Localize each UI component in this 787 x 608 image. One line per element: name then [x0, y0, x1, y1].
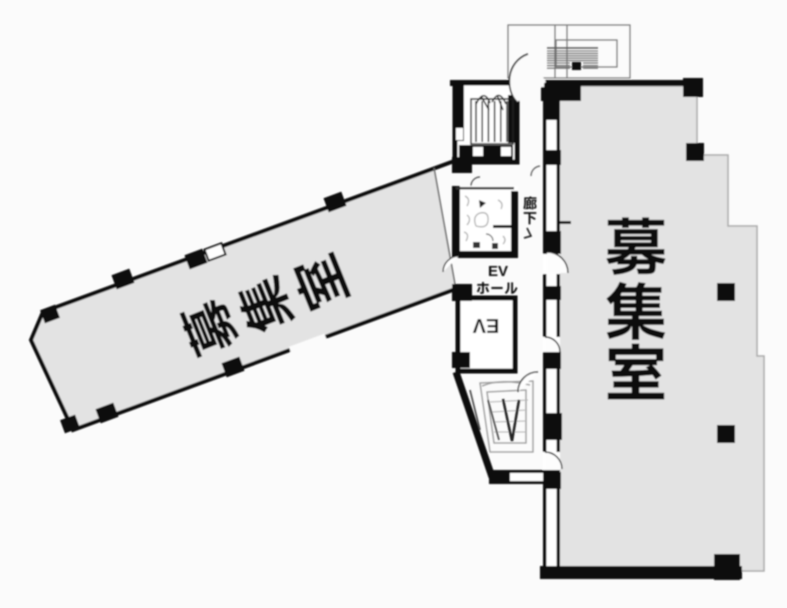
- svg-text:EV: EV: [472, 314, 499, 336]
- svg-text:EV: EV: [488, 263, 508, 280]
